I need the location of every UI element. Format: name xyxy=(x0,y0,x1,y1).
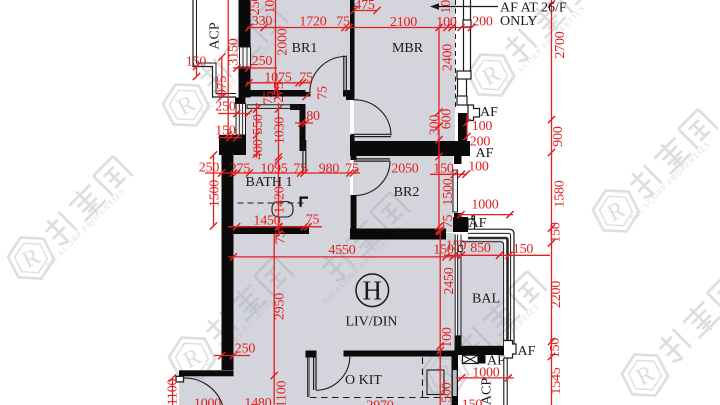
svg-text:150: 150 xyxy=(513,242,534,257)
svg-text:150: 150 xyxy=(548,338,563,359)
svg-text:75: 75 xyxy=(336,15,350,30)
svg-text:75: 75 xyxy=(293,162,307,177)
svg-text:4550: 4550 xyxy=(328,243,355,258)
svg-text:1000: 1000 xyxy=(263,0,278,14)
svg-text:2400: 2400 xyxy=(440,44,455,71)
svg-text:1500: 1500 xyxy=(441,178,456,205)
svg-text:AF: AF xyxy=(487,354,505,369)
svg-text:BAL: BAL xyxy=(472,292,500,307)
svg-text:3150: 3150 xyxy=(226,38,241,65)
svg-text:1000: 1000 xyxy=(194,397,221,405)
svg-text:2000: 2000 xyxy=(275,28,290,55)
svg-text:1545: 1545 xyxy=(549,367,564,394)
svg-text:150: 150 xyxy=(215,124,236,139)
svg-text:AF: AF xyxy=(480,105,498,120)
svg-text:475: 475 xyxy=(354,0,375,13)
svg-text:100: 100 xyxy=(468,160,489,175)
svg-text:1580: 1580 xyxy=(552,180,567,207)
svg-text:2050: 2050 xyxy=(391,162,418,177)
svg-text:1450: 1450 xyxy=(253,214,280,229)
svg-text:1500: 1500 xyxy=(439,382,454,405)
svg-text:ACP: ACP xyxy=(207,22,222,49)
svg-text:2200: 2200 xyxy=(549,281,564,308)
svg-text:975: 975 xyxy=(215,76,230,97)
svg-text:100: 100 xyxy=(440,327,455,348)
svg-text:900: 900 xyxy=(551,126,566,147)
svg-text:2450: 2450 xyxy=(442,267,457,294)
svg-text:1420: 1420 xyxy=(272,186,287,213)
svg-text:1100: 1100 xyxy=(274,380,289,405)
svg-text:1000: 1000 xyxy=(471,198,498,213)
svg-text:LIV/DIN: LIV/DIN xyxy=(345,315,397,330)
svg-text:200: 200 xyxy=(472,15,493,30)
svg-text:2970: 2970 xyxy=(366,399,393,405)
svg-text:980: 980 xyxy=(319,162,340,177)
svg-text:AF: AF xyxy=(469,216,487,231)
svg-text:250: 250 xyxy=(252,54,273,69)
svg-text:BATH 1: BATH 1 xyxy=(245,175,292,190)
svg-text:1500: 1500 xyxy=(207,180,222,207)
svg-text:MBR: MBR xyxy=(392,41,424,56)
svg-text:75: 75 xyxy=(306,213,320,228)
svg-text:1720: 1720 xyxy=(299,15,326,30)
svg-text:O KIT: O KIT xyxy=(345,373,382,388)
svg-text:1100: 1100 xyxy=(166,378,181,405)
svg-text:330: 330 xyxy=(252,14,273,29)
svg-text:250: 250 xyxy=(199,161,220,176)
svg-text:75: 75 xyxy=(345,162,359,177)
svg-text:150: 150 xyxy=(186,55,207,70)
svg-text:80: 80 xyxy=(306,109,320,124)
svg-text:BR1: BR1 xyxy=(292,41,318,56)
svg-text:AF: AF xyxy=(518,344,536,359)
svg-text:150: 150 xyxy=(433,162,454,177)
svg-text:300: 300 xyxy=(427,115,442,136)
svg-text:100: 100 xyxy=(472,119,493,134)
svg-text:ONLY: ONLY xyxy=(500,14,537,29)
svg-text:400: 400 xyxy=(251,139,266,160)
svg-text:150: 150 xyxy=(548,222,563,243)
svg-text:ACP: ACP xyxy=(479,378,494,405)
svg-text:850: 850 xyxy=(470,241,491,256)
svg-text:2950: 2950 xyxy=(273,293,288,320)
svg-text:150: 150 xyxy=(433,243,454,258)
svg-text:BR2: BR2 xyxy=(394,185,420,200)
svg-text:550: 550 xyxy=(251,114,266,135)
svg-text:AF: AF xyxy=(476,146,494,161)
svg-text:2700: 2700 xyxy=(553,31,568,58)
svg-text:75: 75 xyxy=(261,91,276,105)
svg-text:250: 250 xyxy=(215,100,236,115)
svg-text:1480: 1480 xyxy=(244,396,271,405)
svg-text:250: 250 xyxy=(235,342,256,357)
svg-text:H: H xyxy=(363,276,383,306)
svg-text:75: 75 xyxy=(441,215,456,229)
svg-text:75: 75 xyxy=(315,86,330,100)
svg-text:100: 100 xyxy=(436,15,457,30)
svg-text:250: 250 xyxy=(248,0,263,15)
svg-text:75: 75 xyxy=(299,71,313,86)
svg-text:75: 75 xyxy=(273,231,288,245)
svg-text:1030: 1030 xyxy=(272,117,287,144)
svg-text:2100: 2100 xyxy=(390,15,417,30)
